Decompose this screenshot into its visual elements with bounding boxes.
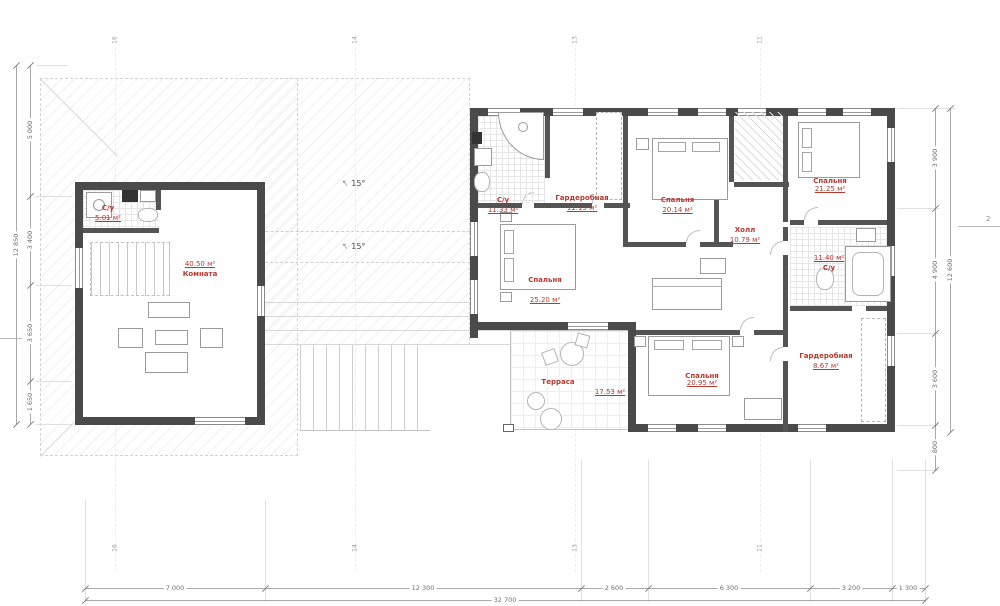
terrace-door — [568, 322, 608, 330]
section-marker-line — [958, 226, 1000, 227]
section-marker-line — [0, 338, 22, 339]
wall-segment — [790, 220, 804, 225]
armchair — [200, 328, 223, 348]
dim-label: 12 850 — [12, 232, 20, 259]
window — [195, 417, 245, 425]
wall-segment — [545, 116, 550, 178]
toilet — [138, 208, 158, 222]
extension-line — [810, 460, 811, 602]
room-label: Гардеробная 8.67 м² — [786, 352, 866, 372]
pillow — [802, 152, 812, 172]
room-label: Спальня 25.20 м² — [505, 276, 585, 306]
extension-line — [925, 460, 926, 602]
dimension-line — [85, 588, 925, 589]
wall-segment — [623, 116, 628, 247]
dimension-tick — [27, 421, 34, 428]
wall-segment — [156, 190, 161, 210]
wall-segment — [790, 306, 852, 311]
washer — [122, 190, 138, 202]
table — [700, 258, 726, 274]
section-marker-label: 2 — [986, 215, 990, 223]
room-label: Терраса — [530, 378, 586, 388]
window — [648, 108, 678, 116]
dim-label: 32 700 — [492, 596, 519, 604]
room-label: Холл 10.79 м² — [716, 226, 774, 246]
dim-label: 12 600 — [946, 257, 954, 284]
dim-label: 3 600 — [931, 368, 939, 391]
closet-hatch — [735, 112, 783, 180]
dim-label: 4 900 — [931, 259, 939, 282]
nightstand — [636, 138, 649, 150]
pillow — [692, 340, 722, 350]
roof-slope-label: ↑ 15° — [342, 242, 365, 251]
window — [843, 108, 871, 116]
extension-line — [897, 108, 955, 109]
wall-segment — [783, 116, 788, 222]
axis-tick-label: 14 — [352, 544, 359, 552]
dim-label: 1 300 — [897, 584, 920, 592]
sofa — [148, 302, 190, 318]
toilet — [474, 172, 490, 192]
dim-label: 7 000 — [164, 584, 187, 592]
wall-segment — [729, 116, 734, 182]
sofa-back-line — [652, 286, 722, 287]
window — [798, 108, 826, 116]
sink — [856, 228, 876, 242]
pillow — [654, 340, 684, 350]
extension-line — [892, 460, 893, 602]
dimension-tick — [947, 429, 954, 436]
window — [470, 222, 478, 256]
pillow — [692, 142, 720, 152]
slope-arrow-icon: ↑ — [340, 178, 351, 189]
axis-tick-label: 11 — [757, 544, 764, 552]
extension-line — [36, 196, 72, 197]
floor-plan-canvas: 16 14 13 11 16 14 13 11 ↑ 15° ↑ 15° С/у — [0, 0, 1000, 606]
armchair — [118, 328, 143, 348]
dim-label: 3 650 — [26, 322, 34, 345]
sink — [140, 190, 156, 202]
dim-label: 3 900 — [931, 147, 939, 170]
wardrobe-shelves — [596, 112, 622, 200]
sink — [474, 148, 492, 166]
dim-label: 5 000 — [26, 119, 34, 142]
plant — [527, 392, 545, 410]
wall-segment — [83, 228, 159, 233]
window — [887, 128, 895, 162]
window — [698, 424, 726, 432]
dim-label: 6 300 — [718, 584, 741, 592]
extension-line — [581, 460, 582, 602]
nightstand — [634, 336, 646, 347]
room-label: 17.53 м² — [585, 388, 635, 398]
wall-segment — [818, 220, 887, 225]
wall-segment — [783, 361, 788, 432]
plant — [540, 408, 562, 430]
wall-segment — [754, 330, 788, 335]
axis-tick-label: 16 — [112, 544, 119, 552]
dim-label: 3 200 — [840, 584, 863, 592]
washer — [472, 132, 482, 144]
extension-line — [36, 285, 72, 286]
axis-tick-label: 14 — [352, 36, 359, 44]
dimension-tick — [922, 597, 929, 604]
axis-tick-label: 13 — [572, 544, 579, 552]
window — [553, 108, 583, 116]
sofa — [145, 352, 188, 373]
wall-segment — [470, 322, 636, 330]
extension-line — [648, 460, 649, 602]
roof-ridge-line — [255, 262, 470, 263]
extension-line — [36, 424, 72, 425]
room-label: 11.40 м² С/у — [796, 254, 862, 274]
window — [887, 336, 895, 366]
dim-label: 1 650 — [26, 391, 34, 414]
room-label: 40.50 м² Комната — [160, 260, 240, 280]
wall-segment — [636, 330, 740, 335]
dimension-tick — [13, 421, 20, 428]
extension-line — [36, 65, 68, 66]
terrace-post — [503, 424, 514, 432]
pillow — [802, 128, 812, 148]
wall-segment — [783, 227, 788, 241]
window — [648, 424, 676, 432]
wall-segment — [866, 306, 887, 311]
stairs — [90, 242, 170, 296]
window — [798, 424, 826, 432]
extension-line — [36, 381, 72, 382]
dim-label: 12 300 — [410, 584, 437, 592]
window — [257, 286, 265, 316]
window — [698, 108, 726, 116]
wall-segment — [628, 242, 686, 247]
dim-label: 3 400 — [26, 229, 34, 252]
axis-tick-label: 11 — [757, 36, 764, 44]
room-label: Спальня 20.14 м² — [630, 196, 725, 216]
slope-arrow-icon: ↑ — [340, 241, 351, 252]
window — [470, 280, 478, 314]
roof-slope-label: ↑ 15° — [342, 179, 365, 188]
coffee-table — [155, 330, 188, 345]
axis-tick-label: 16 — [112, 36, 119, 44]
bathtub-drain — [518, 122, 528, 132]
dim-label: 2 600 — [603, 584, 626, 592]
dresser — [744, 398, 782, 420]
pillow — [658, 142, 686, 152]
wall-segment — [734, 182, 789, 187]
dim-label: 800 — [931, 439, 939, 455]
room-label: С/у 11.33 м² — [474, 196, 532, 216]
window — [75, 248, 83, 288]
room-label: Спальня 21.25 м² — [795, 178, 865, 193]
room-label: С/у 5.01 м² — [78, 204, 138, 224]
sofa — [652, 278, 722, 310]
axis-tick-label: 13 — [572, 36, 579, 44]
room-label: Спальня 20.95 м² — [666, 373, 738, 388]
nightstand — [732, 336, 744, 347]
pillow — [504, 230, 514, 254]
room-label: Гардеробная 11.13 м² — [542, 194, 622, 214]
outdoor-stairs — [300, 345, 430, 431]
